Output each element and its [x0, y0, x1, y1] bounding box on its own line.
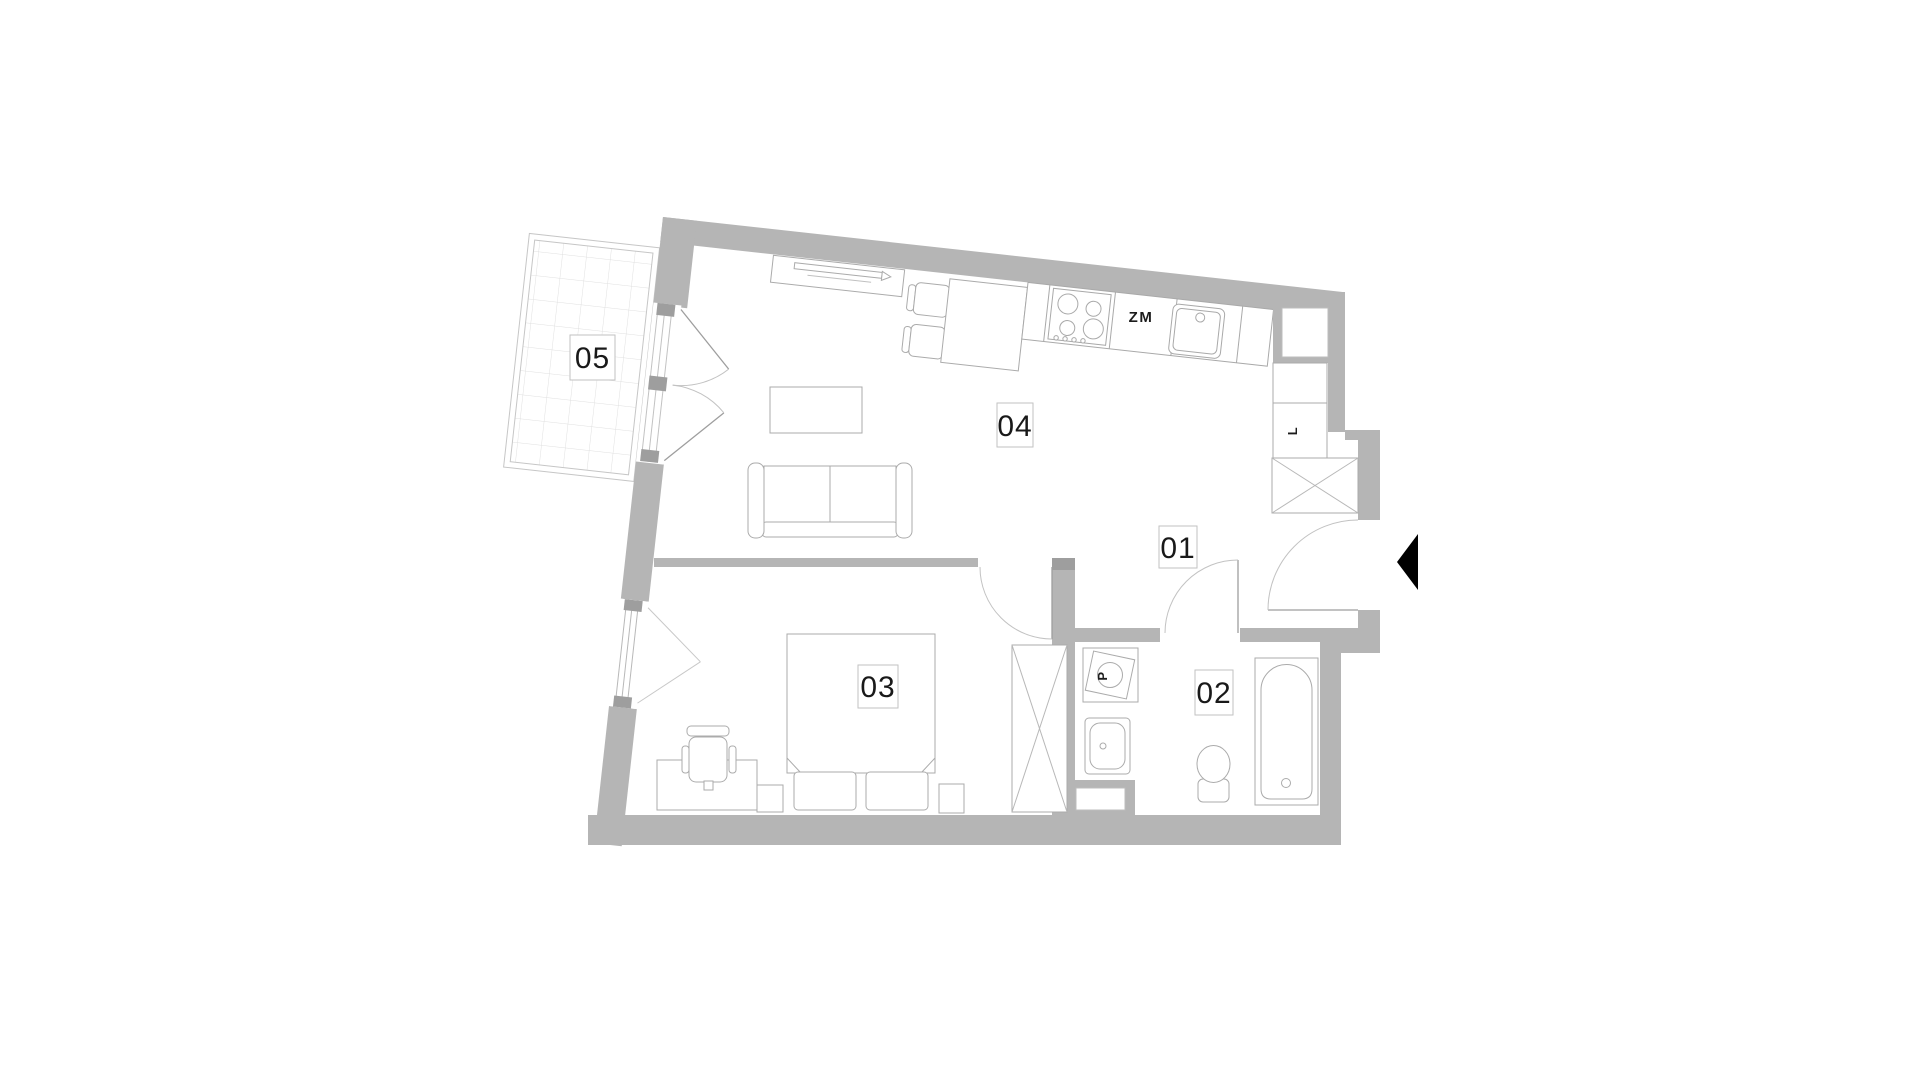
- pillow: [866, 772, 928, 810]
- wall-corner-block: [1320, 632, 1380, 653]
- kitchen-sink: [1168, 304, 1225, 359]
- coffee-table: [770, 387, 862, 433]
- entrance-arrow-icon: [1397, 534, 1418, 590]
- dishwasher-label: ZM: [1129, 309, 1154, 326]
- door-leaf: [675, 310, 735, 370]
- sofa-armrest: [896, 463, 912, 538]
- window-jamb: [613, 696, 632, 709]
- balcony-door: [636, 302, 735, 470]
- wall-right-upper: [1328, 292, 1345, 432]
- svg-text:01: 01: [1160, 532, 1195, 565]
- sofa: [748, 463, 912, 538]
- fridge: [1273, 403, 1327, 458]
- svg-text:04: 04: [997, 410, 1032, 443]
- window-opening-line: [638, 655, 701, 709]
- washbasin: [1085, 718, 1130, 774]
- sofa-armrest: [748, 463, 764, 538]
- living-furniture: [748, 387, 912, 538]
- bathroom-shaft: [1076, 788, 1125, 810]
- nightstand: [939, 784, 964, 813]
- door-mullion: [648, 375, 667, 391]
- cooktop: [1048, 288, 1111, 345]
- window-jamb: [624, 599, 643, 612]
- washing-machine-label: P: [1095, 671, 1110, 680]
- wall-left-pillar: [653, 217, 696, 308]
- door-leaf: [664, 407, 724, 467]
- wall-bath-top-left: [1075, 628, 1160, 642]
- dining-chair: [901, 323, 945, 359]
- floor-plan-svg: ZM L P 05 04 01 03 02: [0, 0, 1920, 1080]
- door-swing-arc: [670, 385, 726, 413]
- door-jamb: [656, 303, 675, 317]
- room-label-01: 01: [1159, 526, 1197, 568]
- room-label-02: 02: [1195, 670, 1233, 715]
- wall-step: [1345, 430, 1380, 440]
- bedroom-furniture: [657, 634, 1067, 813]
- wall-left-mid: [621, 461, 664, 602]
- kitchen-tall-cabinet: [1273, 363, 1327, 403]
- room-label-03: 03: [858, 665, 898, 708]
- duct-shaft: [1282, 308, 1328, 357]
- door-jamb: [640, 449, 659, 463]
- dining-set: [901, 274, 1028, 370]
- wall-right-above-door: [1358, 440, 1380, 520]
- fridge-label: L: [1285, 427, 1300, 435]
- wall-column-cap: [1052, 558, 1075, 570]
- svg-text:05: 05: [575, 342, 610, 375]
- wall-living-bedroom: [654, 558, 978, 567]
- room-label-05: 05: [570, 335, 615, 380]
- floor-plan-page: ZM L P 05 04 01 03 02: [0, 0, 1920, 1080]
- bed: [787, 634, 935, 810]
- washing-machine: [1083, 648, 1138, 702]
- svg-text:03: 03: [860, 671, 895, 704]
- nightstand: [757, 785, 783, 812]
- pillow: [794, 772, 856, 810]
- bedroom-door: [980, 567, 1052, 639]
- wall-bottom: [588, 815, 1341, 845]
- dining-chair: [906, 281, 950, 317]
- dining-table: [941, 279, 1028, 371]
- toilet: [1197, 746, 1230, 803]
- bathtub: [1255, 658, 1318, 805]
- svg-text:02: 02: [1196, 677, 1231, 710]
- bedroom-window: [609, 599, 706, 716]
- wall-bath-right: [1320, 653, 1341, 815]
- room-label-04: 04: [997, 403, 1033, 447]
- hall-closet: [1272, 458, 1358, 513]
- bathroom-door: [1165, 560, 1238, 633]
- entrance-door: [1268, 520, 1358, 610]
- wardrobe: [1012, 645, 1067, 812]
- window-opening-line: [643, 608, 706, 662]
